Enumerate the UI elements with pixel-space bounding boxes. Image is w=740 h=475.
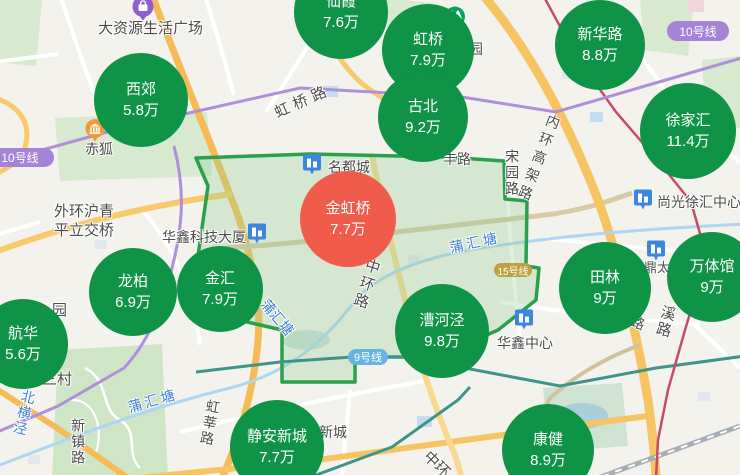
bubble-price: 8.8万 <box>582 45 618 66</box>
bubble-price: 5.6万 <box>5 344 41 365</box>
bubble-price: 7.7万 <box>330 219 366 240</box>
price-bubble[interactable]: 新华路8.8万 <box>555 0 645 90</box>
map-canvas[interactable]: 大资源生活广场赤狐外环沪青平立交桥华鑫科技大厦名都城虹桥路丰路宋园路内环高架路尚… <box>0 0 740 475</box>
price-bubble[interactable]: 古北9.2万 <box>378 72 468 162</box>
bubble-price: 7.9万 <box>202 289 238 310</box>
price-bubble[interactable]: 航华5.6万 <box>0 299 68 389</box>
bubble-area-name: 徐家汇 <box>665 110 710 131</box>
price-bubble[interactable]: 田林9万 <box>559 242 651 334</box>
price-bubble[interactable]: 康健8.9万 <box>502 404 594 475</box>
price-bubble-layer: 仙霞7.6万虹桥7.9万古北9.2万新华路8.8万徐家汇11.4万西郊5.8万金… <box>0 0 740 475</box>
bubble-price: 7.9万 <box>410 50 446 71</box>
bubble-area-name: 金汇 <box>205 268 235 289</box>
price-bubble[interactable]: 金虹桥7.7万 <box>300 171 396 267</box>
bubble-area-name: 静安新城 <box>247 426 307 447</box>
price-bubble[interactable]: 徐家汇11.4万 <box>640 83 736 179</box>
bubble-area-name: 仙霞 <box>326 0 356 12</box>
bubble-area-name: 虹桥 <box>413 29 443 50</box>
bubble-price: 9万 <box>700 277 723 298</box>
bubble-price: 5.8万 <box>123 100 159 121</box>
price-bubble[interactable]: 静安新城7.7万 <box>230 400 324 475</box>
bubble-price: 11.4万 <box>666 131 709 152</box>
price-bubble[interactable]: 仙霞7.6万 <box>294 0 388 59</box>
bubble-area-name: 万体馆 <box>689 256 734 277</box>
bubble-area-name: 古北 <box>408 96 438 117</box>
price-bubble[interactable]: 金汇7.9万 <box>177 246 263 332</box>
bubble-price: 9万 <box>593 288 616 309</box>
bubble-area-name: 田林 <box>590 267 620 288</box>
bubble-area-name: 新华路 <box>577 24 622 45</box>
bubble-price: 8.9万 <box>530 450 566 471</box>
bubble-area-name: 航华 <box>8 323 38 344</box>
bubble-area-name: 西郊 <box>126 79 156 100</box>
price-bubble[interactable]: 龙柏6.9万 <box>89 248 177 336</box>
bubble-area-name: 康健 <box>533 429 563 450</box>
bubble-price: 7.6万 <box>323 12 359 33</box>
price-bubble[interactable]: 万体馆9万 <box>667 232 740 322</box>
bubble-price: 7.7万 <box>259 447 295 468</box>
bubble-price: 9.2万 <box>405 117 441 138</box>
price-bubble[interactable]: 西郊5.8万 <box>94 53 188 147</box>
bubble-area-name: 龙柏 <box>118 271 148 292</box>
bubble-price: 6.9万 <box>115 292 151 313</box>
bubble-area-name: 漕河泾 <box>419 310 464 331</box>
bubble-area-name: 金虹桥 <box>325 198 370 219</box>
bubble-price: 9.8万 <box>424 331 460 352</box>
price-bubble[interactable]: 漕河泾9.8万 <box>395 284 489 378</box>
